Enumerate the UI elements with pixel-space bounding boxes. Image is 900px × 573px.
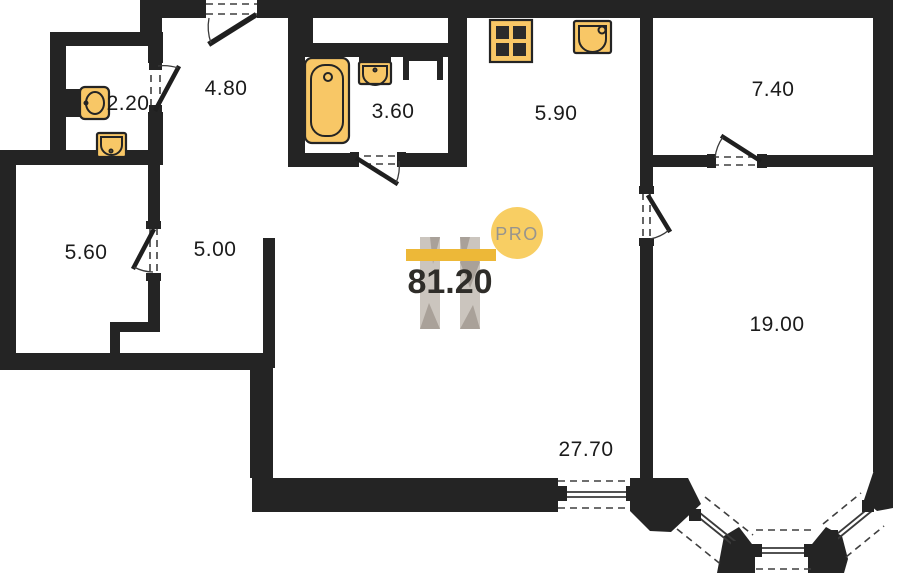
bedroom-door-arc — [650, 230, 669, 239]
wall-segment — [196, 2, 206, 16]
wc-washbasin-icon — [97, 133, 126, 157]
wc-door — [149, 63, 178, 112]
living-room-window — [556, 481, 637, 508]
window-jamb — [731, 541, 743, 553]
wall-segment — [257, 0, 455, 18]
wall-segment — [448, 0, 874, 18]
room-area-label-wc: 2.20 — [107, 92, 150, 115]
bay-window-center — [751, 530, 815, 569]
storage-door — [134, 221, 161, 281]
wall-segment — [50, 32, 162, 46]
wall-segment — [640, 18, 653, 192]
pro-badge: PRO — [491, 207, 543, 259]
room740-door — [707, 137, 767, 168]
bedroom-door — [639, 186, 669, 246]
room-area-label-bathroom: 3.60 — [372, 100, 415, 123]
bedroom-door-leaf — [649, 197, 669, 230]
brand-logo-bar — [406, 249, 496, 261]
wall-segment — [110, 332, 120, 353]
room-area-label-living-room: 27.70 — [558, 438, 613, 461]
wall-segment — [288, 153, 352, 167]
door-jamb — [149, 63, 162, 70]
total-area-label: 81.20 — [407, 263, 492, 301]
wall-segment — [263, 238, 275, 368]
room-area-label-bedroom: 19.00 — [749, 313, 804, 336]
floor-plan-svg: PRO 81.20 2.20 4.80 3.60 5.90 7.40 5.60 … — [0, 0, 900, 573]
vent-shaft — [403, 55, 443, 82]
room-area-label-room-top-right: 7.40 — [752, 78, 795, 101]
window-jamb — [804, 544, 815, 557]
door-jamb — [146, 221, 161, 229]
window-jamb — [751, 544, 762, 557]
toilet-icon — [66, 87, 109, 119]
floor-plan-page: PRO 81.20 2.20 4.80 3.60 5.90 7.40 5.60 … — [0, 0, 900, 573]
wall-segment — [50, 32, 66, 165]
door-jamb — [146, 273, 161, 281]
bathtub-icon — [305, 58, 349, 143]
room-area-label-entry-hall: 4.80 — [205, 77, 248, 100]
window-jamb — [862, 500, 874, 512]
vent-shaft-inner — [409, 61, 437, 82]
door-jamb — [639, 186, 654, 194]
wall-segment — [148, 275, 160, 325]
toilet-tank — [66, 89, 80, 117]
room740-door-arc — [715, 137, 723, 158]
wall-segment — [252, 478, 558, 512]
wall-segment — [148, 112, 163, 165]
wall-segment — [448, 18, 467, 167]
bathroom-door-leaf — [358, 159, 396, 183]
entrance-door-arc — [208, 18, 211, 43]
wall-segment — [288, 43, 467, 57]
room-area-label-storage: 5.60 — [65, 241, 108, 264]
door-jamb — [397, 152, 406, 167]
kitchen-sink-icon — [574, 21, 611, 53]
window-jamb — [556, 486, 567, 501]
wall-segment — [640, 242, 653, 478]
wall-segment — [0, 150, 162, 165]
storage-door-leaf — [134, 231, 153, 267]
wall-segment — [148, 165, 160, 227]
window-jamb — [826, 530, 838, 542]
wall-segment — [148, 32, 163, 63]
entrance-door-leaf — [211, 16, 254, 43]
wall-segment — [250, 368, 273, 478]
stove-icon — [490, 20, 532, 62]
bay-wall-pier — [630, 478, 701, 532]
wall-segment — [653, 155, 715, 167]
wall-segment — [0, 150, 16, 370]
wall-segment — [110, 322, 160, 332]
bathroom-door — [350, 152, 406, 183]
window-jamb — [689, 509, 701, 521]
entrance-door — [206, 4, 257, 43]
wall-segment — [762, 155, 873, 167]
bay-window — [630, 470, 893, 573]
wall-segment — [0, 353, 266, 370]
room-area-label-hallway: 5.00 — [194, 238, 237, 261]
room-area-label-kitchen: 5.90 — [535, 102, 578, 125]
pro-badge-label: PRO — [495, 224, 539, 244]
wall-segment — [873, 0, 893, 472]
bathroom-washbasin-icon — [359, 55, 391, 85]
